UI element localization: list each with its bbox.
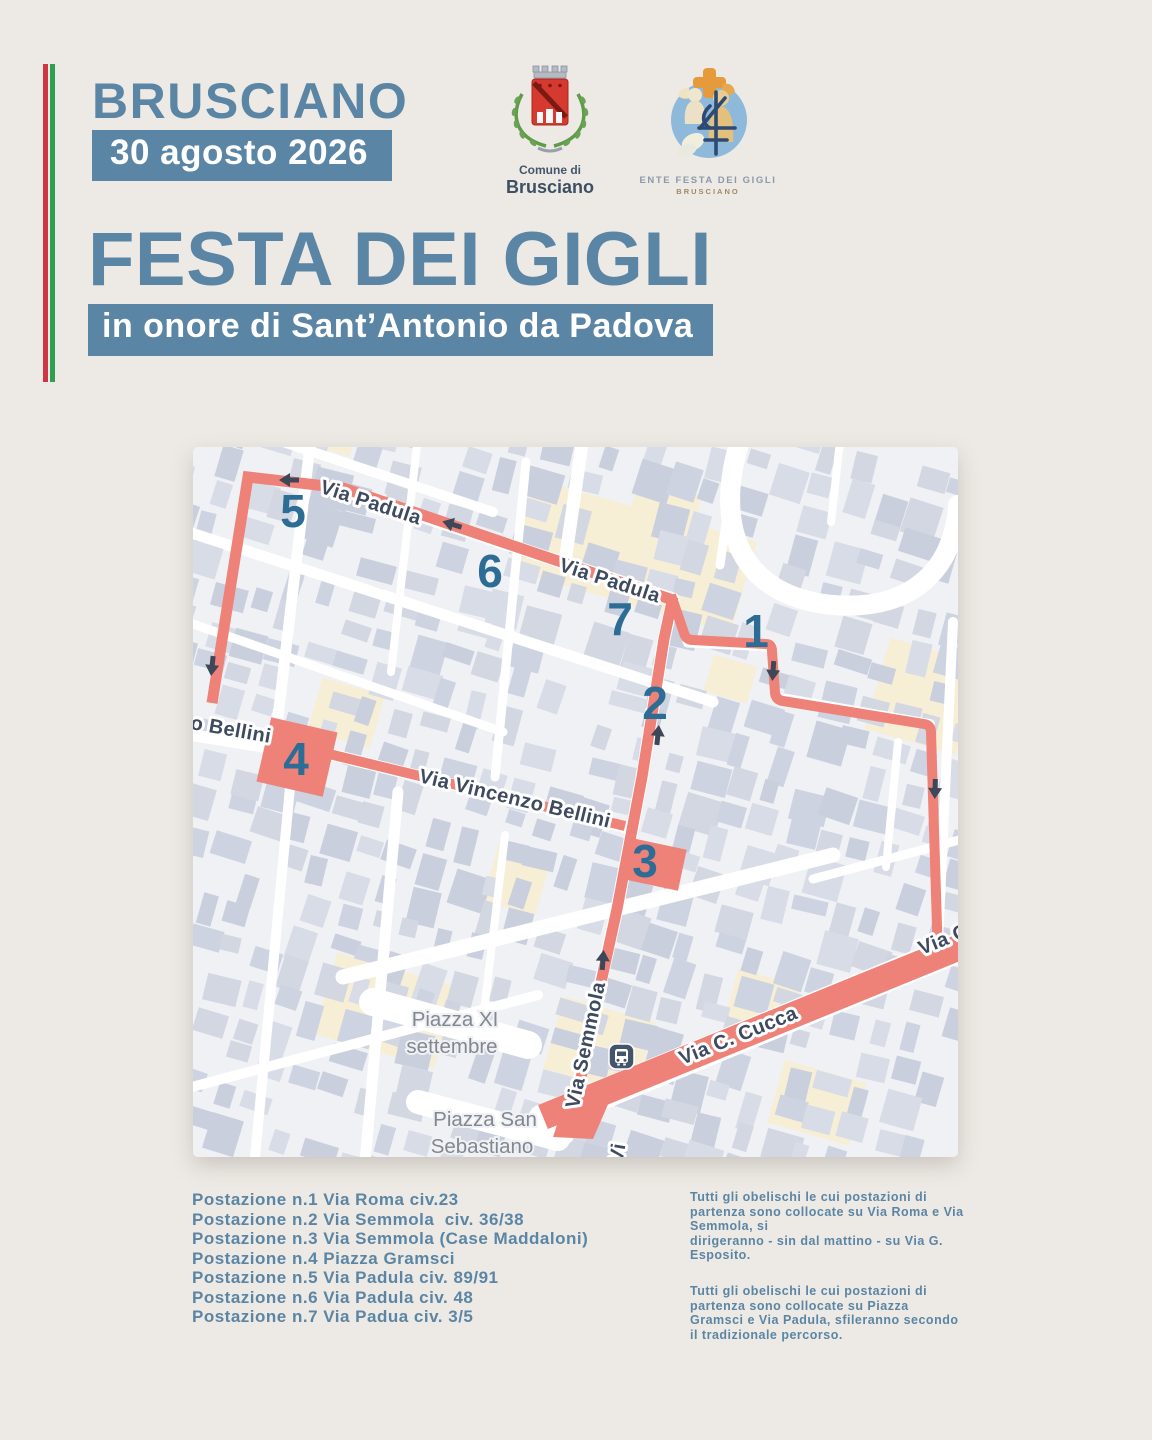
place-label-piazza-xi-line1: Piazza XI xyxy=(412,1008,499,1031)
comune-crest-icon xyxy=(500,64,600,156)
station-number-7: 7 xyxy=(607,593,633,645)
legend-item-1: Postazione n.1 Via Roma civ.23 xyxy=(192,1190,588,1210)
tricolor-stripe-green xyxy=(50,64,55,382)
poster-page: BRUSCIANO 30 agosto 2026 xyxy=(0,0,1152,1440)
legend-item-7: Postazione n.7 Via Padua civ. 3/5 xyxy=(192,1307,588,1327)
station-number-4: 4 xyxy=(283,733,309,785)
legend-item-5: Postazione n.5 Via Padula civ. 89/91 xyxy=(192,1268,588,1288)
event-subtitle: in onore di Sant’Antonio da Padova xyxy=(88,304,713,356)
event-date-badge: 30 agosto 2026 xyxy=(92,130,392,181)
legend-item-3: Postazione n.3 Via Semmola (Case Maddalo… xyxy=(192,1229,588,1249)
station-number-1: 1 xyxy=(743,605,769,657)
comune-logo: Comune di Brusciano xyxy=(492,64,608,198)
route-map: Via Padula Via Padula o Bellini Via Vinc… xyxy=(193,447,958,1157)
comune-caption-line2: Brusciano xyxy=(492,177,608,198)
stations-legend: Postazione n.1 Via Roma civ.23 Postazion… xyxy=(192,1190,588,1327)
event-title: FESTA DEI GIGLI xyxy=(88,216,712,303)
place-label-piazza-ss-line2: Sebastiano xyxy=(431,1135,534,1157)
place-label-piazza-xi-line2: settembre xyxy=(406,1035,497,1058)
legend-item-6: Postazione n.6 Via Padula civ. 48 xyxy=(192,1288,588,1308)
route-notes: Tutti gli obelischi le cui postazioni di… xyxy=(690,1190,990,1342)
station-number-3: 3 xyxy=(632,835,658,887)
station-number-6: 6 xyxy=(477,545,503,597)
legend-item-4: Postazione n.4 Piazza Gramsci xyxy=(192,1249,588,1269)
bus-stop-icon xyxy=(609,1044,634,1069)
ente-caption-line1: ENTE FESTA DEI GIGLI xyxy=(628,175,788,186)
city-name: BRUSCIANO xyxy=(92,72,408,130)
tricolor-stripe-red xyxy=(43,64,48,382)
route-map-svg: Via Padula Via Padula o Bellini Via Vinc… xyxy=(193,447,958,1157)
comune-caption-line1: Comune di xyxy=(492,163,608,177)
ente-logo: ENTE FESTA DEI GIGLI BRUSCIANO xyxy=(628,62,788,196)
ente-caption-line2: BRUSCIANO xyxy=(628,187,788,196)
station-number-2: 2 xyxy=(642,677,668,729)
place-label-piazza-ss-line1: Piazza San xyxy=(433,1108,537,1131)
station-number-5: 5 xyxy=(280,485,306,537)
ente-emblem-icon xyxy=(653,62,763,166)
note-paragraph-1: Tutti gli obelischi le cui postazioni di… xyxy=(690,1190,990,1263)
note-paragraph-2: Tutti gli obelischi le cui postazioni di… xyxy=(690,1284,990,1342)
legend-item-2: Postazione n.2 Via Semmola civ. 36/38 xyxy=(192,1210,588,1230)
